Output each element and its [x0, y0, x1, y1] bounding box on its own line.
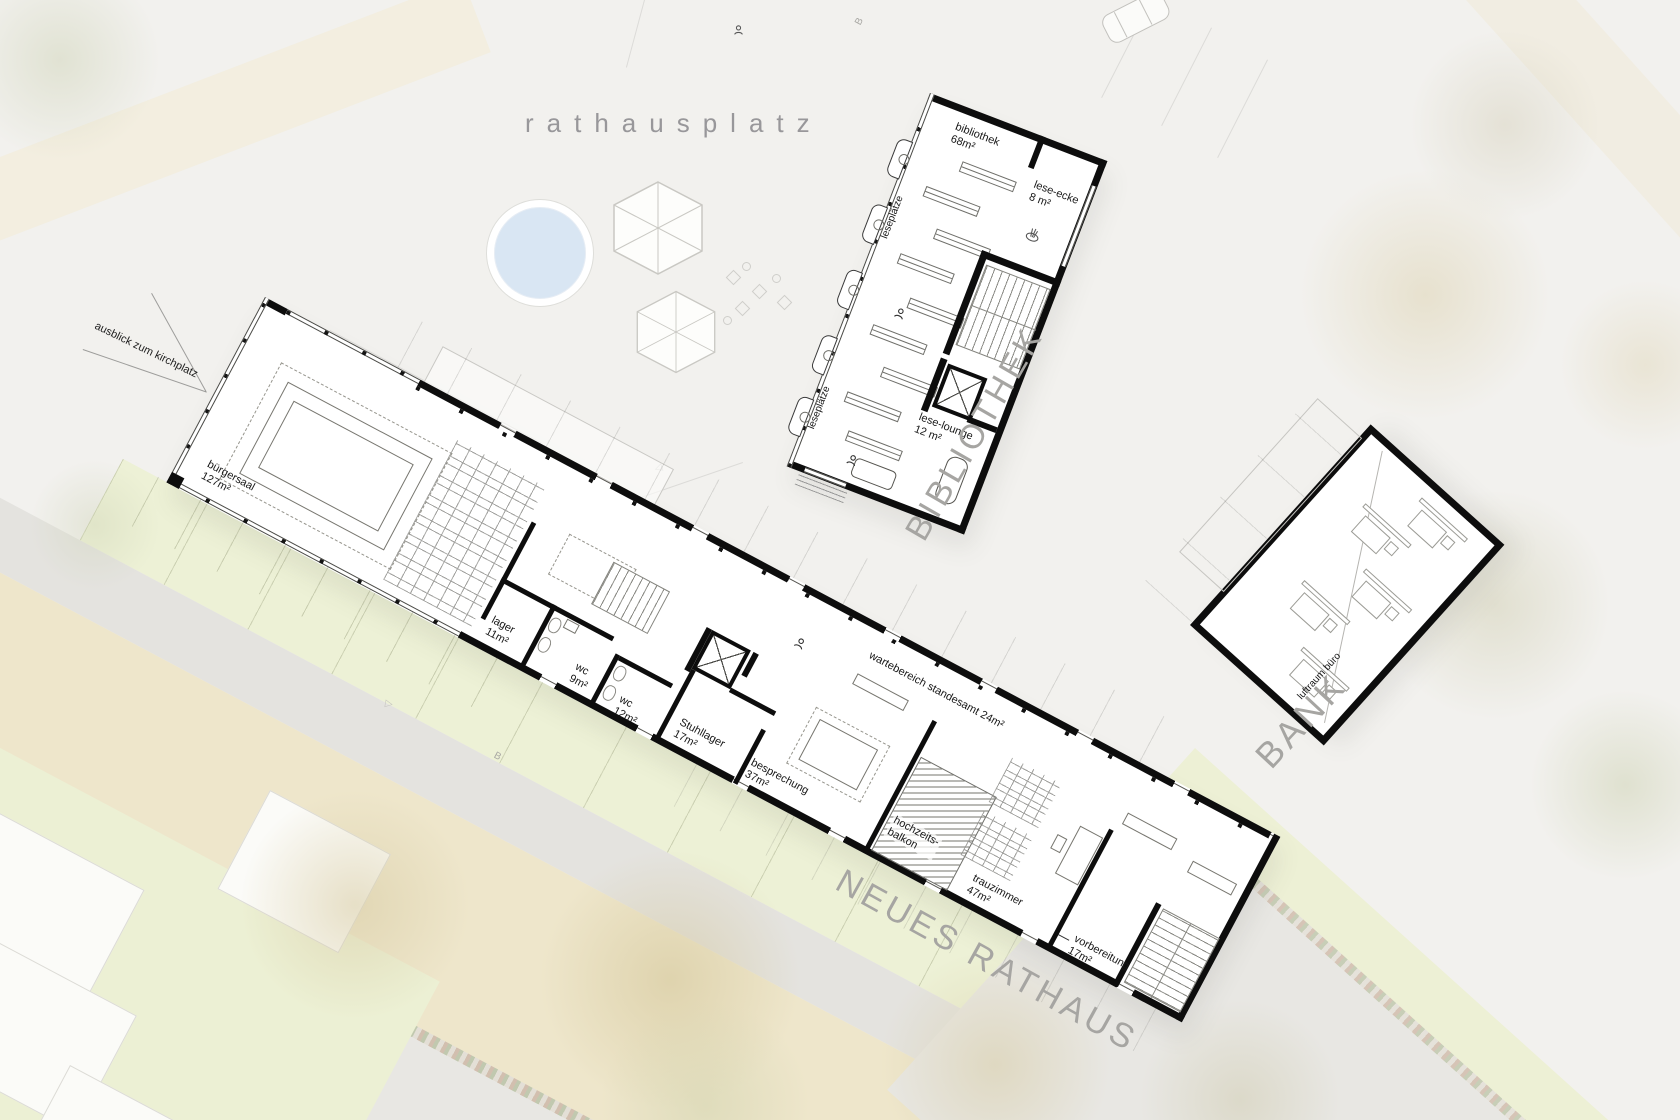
- cafe-table: [742, 262, 751, 271]
- reading-alcove: [885, 137, 913, 180]
- room-label-wc9: wc 9m²: [567, 661, 596, 692]
- label-leader-line: [1058, 934, 1069, 941]
- bookshelf: [869, 324, 927, 355]
- wall-segment: [729, 688, 776, 716]
- reading-alcove: [810, 333, 838, 376]
- car-icon: [1096, 0, 1177, 50]
- office-desk-cluster: [1284, 564, 1366, 645]
- cafe-chair: [735, 301, 751, 317]
- wall-segment: [500, 577, 557, 611]
- room-label-bibliothek: bibliothek 68m²: [949, 121, 1001, 161]
- window-ticks: [286, 310, 420, 384]
- umbrella-hexagon-icon: [606, 178, 710, 278]
- wall-segment: [518, 604, 557, 671]
- cafe-table: [772, 274, 781, 283]
- paving-joint-line: [626, 0, 645, 68]
- bookshelf: [844, 391, 902, 422]
- umbrella-hexagon-icon: [630, 288, 722, 376]
- bookshelf: [897, 253, 955, 284]
- room-label-lager: lager 11m²: [483, 614, 516, 648]
- fountain: [487, 200, 593, 306]
- section-marker: B: [853, 16, 866, 27]
- cafe-chair: [752, 284, 768, 300]
- wall-segment: [1028, 135, 1046, 169]
- cafe-chair: [777, 295, 793, 311]
- stair-rail: [1151, 924, 1191, 999]
- reading-alcove: [835, 268, 863, 311]
- tree: [1560, 280, 1680, 450]
- tree: [1530, 690, 1680, 880]
- parking-line: [1161, 28, 1212, 126]
- plaza-label: rathausplatz: [525, 108, 823, 139]
- triangle-marker: ▷: [384, 698, 393, 710]
- tree: [1410, 30, 1600, 220]
- plant-icon: [1022, 223, 1045, 246]
- room-label-lese-ecke: lese-ecke 8 m²: [1027, 179, 1080, 219]
- tree: [240, 790, 470, 1020]
- counter: [1122, 812, 1178, 850]
- counter: [1187, 861, 1237, 896]
- chair: [1050, 834, 1067, 853]
- cafe-chair: [726, 270, 742, 286]
- site-plan-canvas: rathausplatz ausblick zum kirchplatz B B…: [0, 0, 1680, 1120]
- cafe-table: [723, 316, 732, 325]
- person-icon: [732, 24, 745, 37]
- parking-line: [1217, 60, 1268, 158]
- bookshelf: [959, 161, 1017, 192]
- bookshelf: [923, 186, 981, 217]
- ceremony-chairs: [989, 758, 1062, 828]
- person-icon: [790, 634, 809, 653]
